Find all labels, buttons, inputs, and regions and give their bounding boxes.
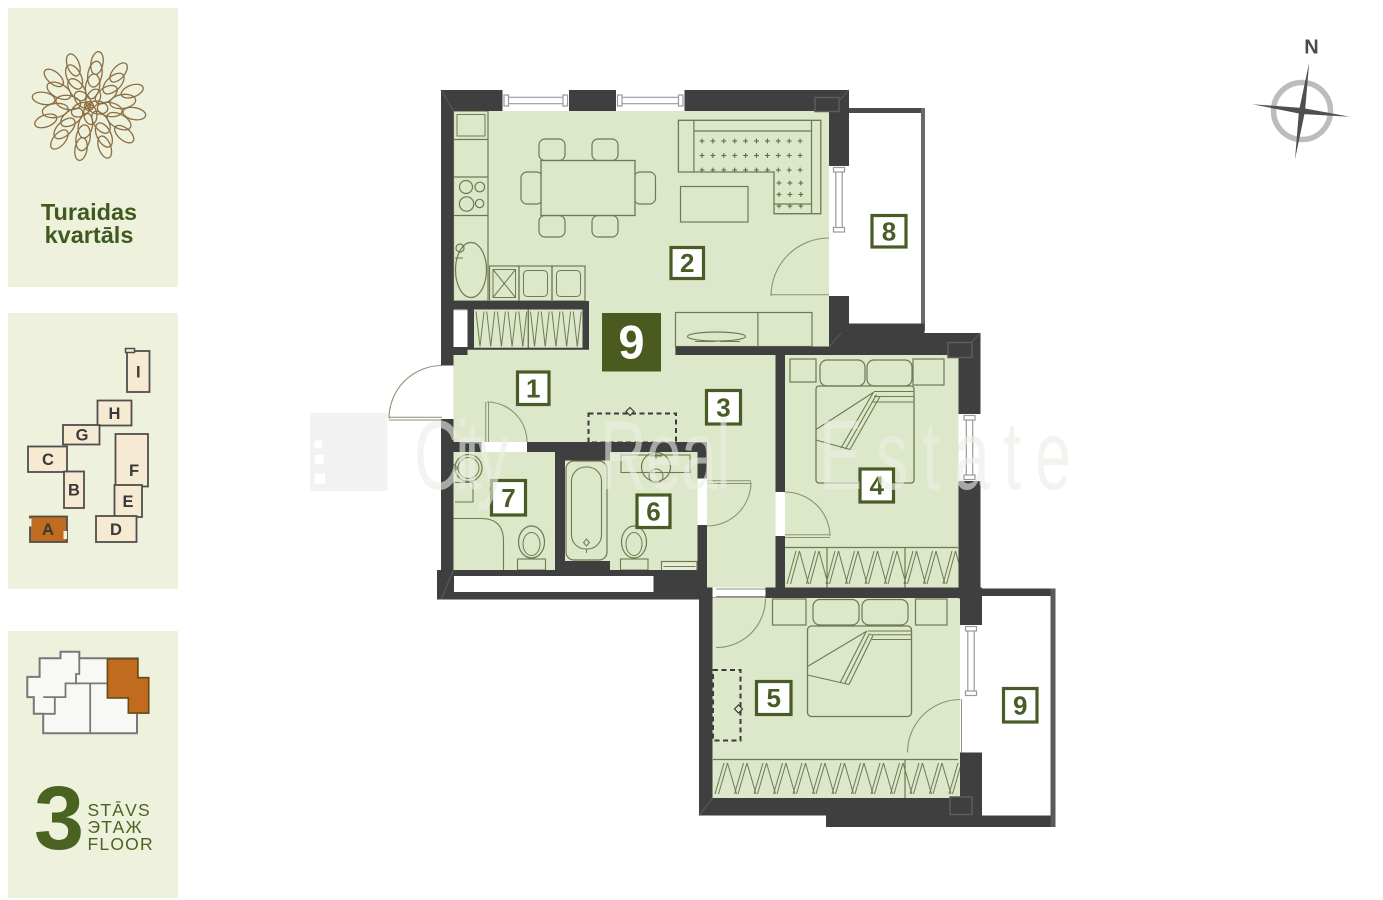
svg-text:kvartāls: kvartāls [45,222,134,248]
svg-text:Real: Real [600,400,731,510]
svg-text:C: C [42,451,54,469]
svg-text:3: 3 [34,769,84,869]
svg-text:9: 9 [618,316,644,369]
svg-text:E: E [122,493,133,511]
svg-text:H: H [109,405,121,423]
svg-text:2: 2 [680,248,694,278]
svg-text:City: City [414,400,509,510]
svg-text:G: G [76,427,89,445]
svg-text:A: A [42,521,54,539]
svg-text:D: D [110,521,122,539]
svg-text:5: 5 [767,683,781,713]
svg-text:B: B [68,482,80,500]
svg-text:1: 1 [526,373,540,403]
svg-text:8: 8 [882,216,896,246]
svg-text:9: 9 [1013,690,1027,720]
svg-text:FLOOR: FLOOR [88,834,154,854]
svg-text:F: F [129,462,139,480]
svg-text:I: I [136,364,141,382]
svg-text:N: N [1304,37,1318,59]
